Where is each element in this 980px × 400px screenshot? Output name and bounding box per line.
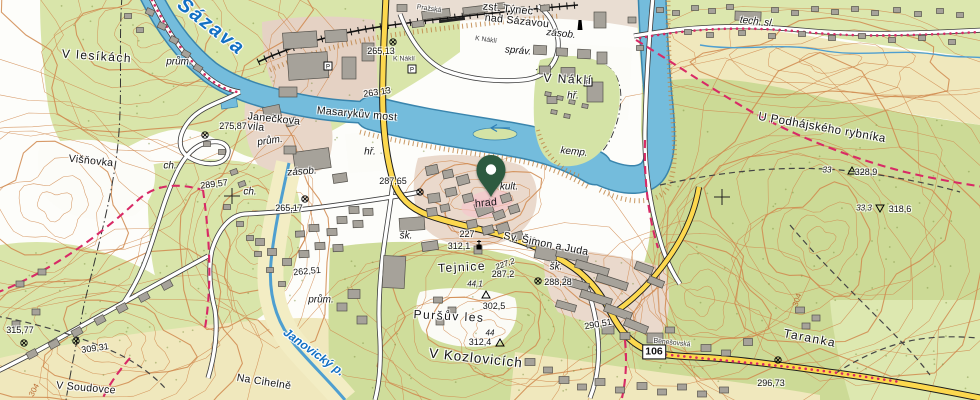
pin-hole — [486, 164, 496, 174]
church-icon — [477, 240, 482, 250]
svg-text:P: P — [410, 67, 414, 73]
parking-icon: P — [408, 65, 416, 73]
svg-text:P: P — [586, 80, 590, 86]
parking-icon: P — [324, 62, 332, 70]
chimney-icon — [578, 20, 583, 30]
map-base-layers: PPP — [0, 0, 980, 400]
location-pin[interactable] — [475, 154, 507, 198]
parking-icon: P — [584, 78, 592, 86]
map-viewport[interactable]: PPP SázavaJanovický p.V lesíkáchV NáklíT… — [0, 0, 980, 400]
svg-text:P: P — [326, 64, 330, 70]
